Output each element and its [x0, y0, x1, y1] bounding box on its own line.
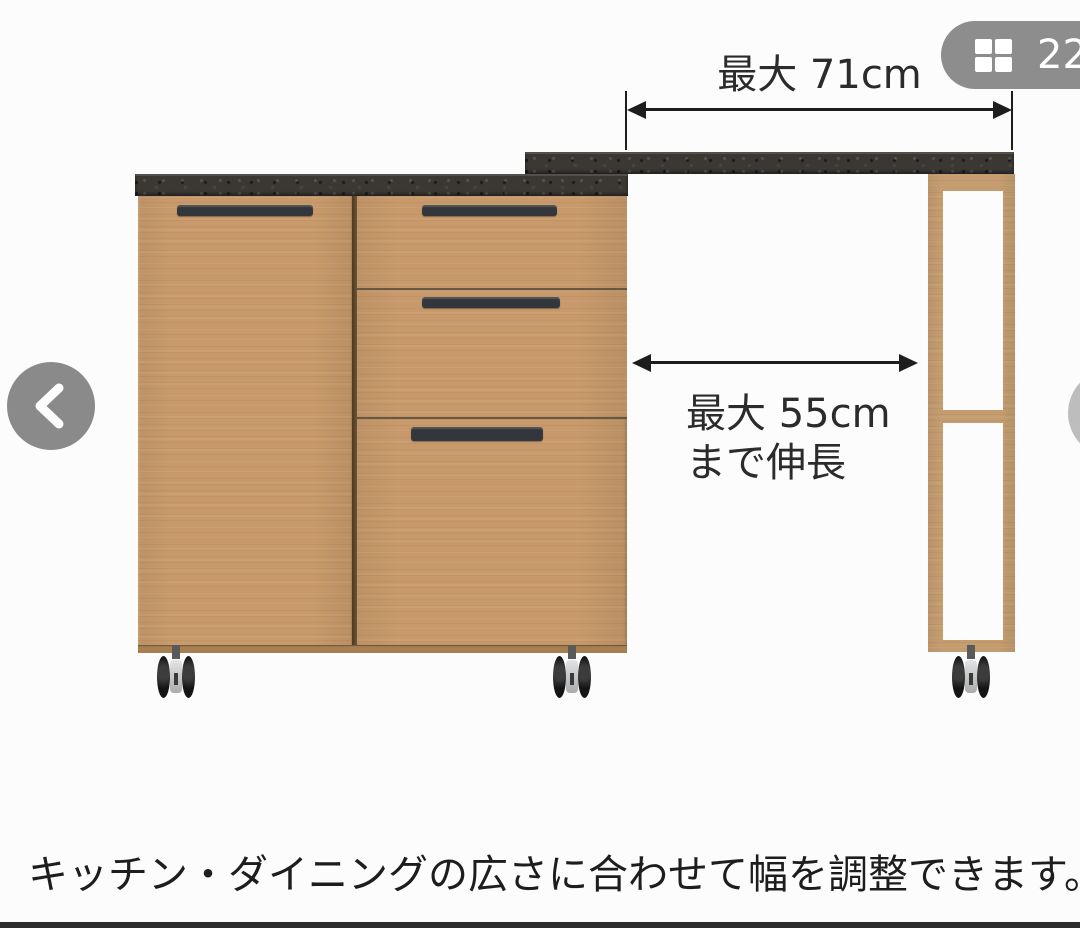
bottom-letterbox-bar: [0, 922, 1080, 928]
door-handle: [177, 205, 313, 216]
photo-count: 22: [1037, 21, 1080, 89]
arrowhead-left-icon: [627, 101, 646, 119]
arrowhead-left-icon: [632, 354, 651, 372]
product-photo-viewer: 最大 71cm 最大 55cm まで伸長 キッチン・ダイニングの広さに合わせて幅…: [0, 0, 1080, 928]
main-countertop: [135, 174, 628, 196]
drawer-middle: [357, 290, 627, 417]
extension-countertop: [525, 152, 1014, 174]
extension-frame-opening-bottom: [943, 423, 1003, 640]
caption: キッチン・ダイニングの広さに合わせて幅を調整できます。: [28, 842, 1080, 900]
arrowhead-right-icon: [993, 101, 1012, 119]
caster-frame: [952, 645, 990, 698]
dimension-55cm-line2: まで伸長: [686, 439, 891, 488]
drawer-top-handle: [422, 205, 557, 216]
arrowhead-right-icon: [899, 354, 918, 372]
dimension-55cm-line1: 最大 55cm: [686, 390, 891, 439]
next-button-partial[interactable]: [1068, 369, 1080, 457]
dimension-71cm-tick-right: [1011, 91, 1013, 150]
dimension-55cm-label: 最大 55cm まで伸長: [686, 390, 891, 488]
photo-count-badge[interactable]: 22: [941, 21, 1080, 89]
caster-left: [157, 645, 195, 698]
extension-frame-opening-top: [943, 191, 1003, 410]
dimension-71cm-tick-left: [625, 91, 627, 150]
chevron-right-icon: [1068, 369, 1080, 457]
dimension-71cm-arrow: [643, 108, 995, 111]
cabinet-door: [138, 196, 352, 645]
drawer-bottom: [357, 419, 627, 645]
drawer-middle-handle: [422, 297, 560, 308]
grid-gallery-icon: [975, 39, 1012, 72]
prev-button[interactable]: [7, 362, 95, 450]
drawer-bottom-handle: [411, 427, 543, 441]
chevron-left-icon: [7, 362, 95, 450]
dimension-55cm-arrow: [649, 361, 901, 364]
caster-right: [553, 645, 591, 698]
